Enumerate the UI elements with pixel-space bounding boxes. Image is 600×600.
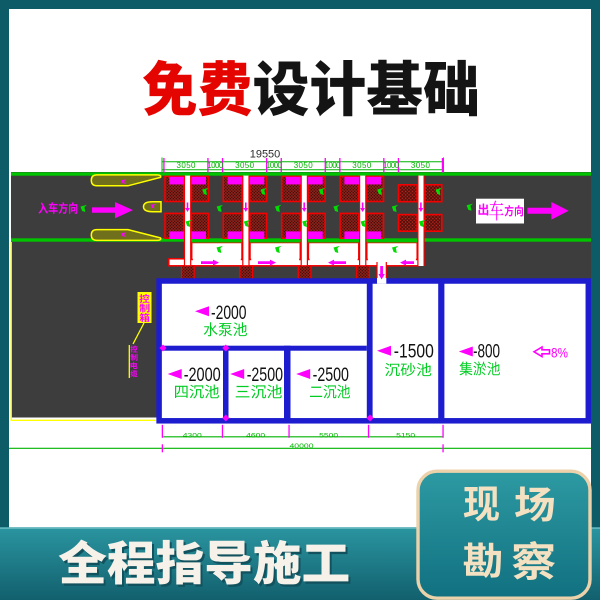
svg-text:-2000: -2000 xyxy=(211,303,247,324)
svg-text:5500: 5500 xyxy=(319,432,338,439)
svg-text:-2500: -2500 xyxy=(313,365,349,386)
svg-text:4600: 4600 xyxy=(246,432,265,439)
svg-text:-2000: -2000 xyxy=(184,365,221,386)
svg-text:-800: -800 xyxy=(473,342,500,363)
svg-text:19550: 19550 xyxy=(250,149,281,161)
svg-text:-2500: -2500 xyxy=(247,365,283,386)
svg-text:5150: 5150 xyxy=(396,432,415,439)
svg-text:8%: 8% xyxy=(551,345,568,361)
svg-text:1000: 1000 xyxy=(383,161,400,170)
svg-text:-1500: -1500 xyxy=(394,342,434,363)
svg-text:4300: 4300 xyxy=(183,432,202,439)
svg-text:1000: 1000 xyxy=(207,161,224,170)
svg-text:1000: 1000 xyxy=(325,161,342,170)
svg-text:40000: 40000 xyxy=(290,443,315,450)
svg-text:3050: 3050 xyxy=(177,161,197,170)
svg-text:1000: 1000 xyxy=(266,161,283,170)
svg-text:3050: 3050 xyxy=(235,161,255,170)
svg-text:3050: 3050 xyxy=(352,161,372,170)
svg-text:3050: 3050 xyxy=(294,161,314,170)
svg-text:3050: 3050 xyxy=(411,161,431,170)
